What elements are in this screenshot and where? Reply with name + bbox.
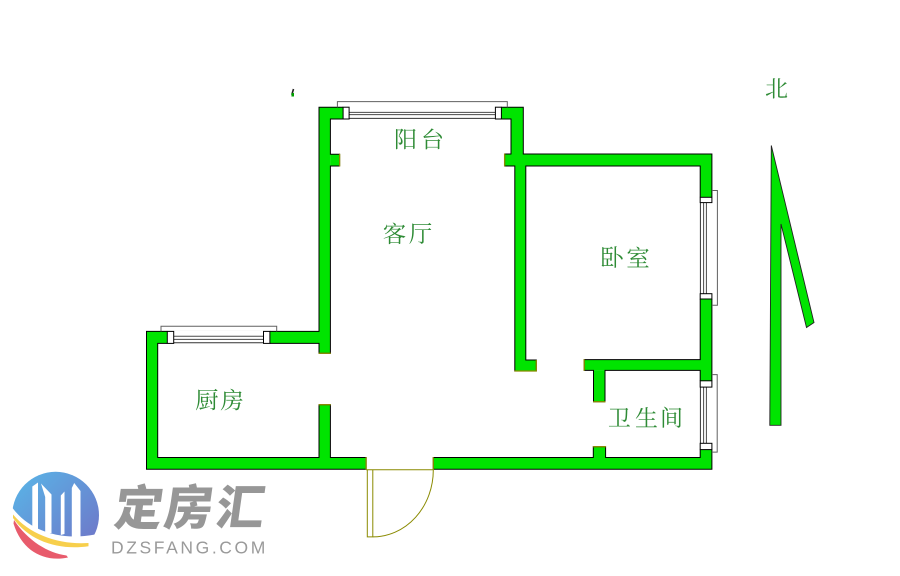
svg-text:DZSFANG.COM: DZSFANG.COM bbox=[111, 538, 268, 558]
